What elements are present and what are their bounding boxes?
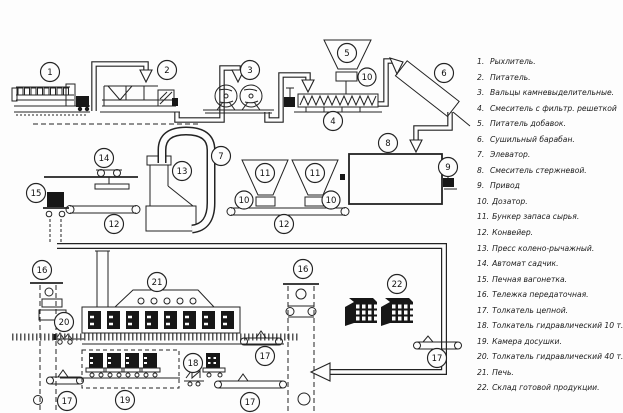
svg-text:21: 21 [152,278,163,288]
legend-item: 5.Питатель добавок. [477,116,623,132]
svg-text:3: 3 [247,66,252,76]
legend-item: 1.Рыхлитель. [477,54,623,70]
legend-item: 17.Толкатель цепной. [477,303,623,319]
legend-item: 7.Элеватор. [477,147,623,163]
legend-item: 8.Смеситель стержневой. [477,163,623,179]
legend-item: 12.Конвейер. [477,225,623,241]
legend-item: 10.Дозатор. [477,194,623,210]
machine-15-kiln-car [43,192,69,243]
svg-text:8: 8 [385,139,390,149]
svg-text:6: 6 [441,69,446,79]
callout-9: 9 [439,158,458,177]
callout-10-top: 10 [358,68,376,86]
callout-15: 15 [27,184,46,203]
svg-text:17: 17 [245,398,256,408]
svg-text:19: 19 [120,396,131,406]
svg-text:9: 9 [445,163,450,173]
flow-arrow-into-mixer [302,80,314,92]
svg-text:16: 16 [37,266,48,276]
legend-item: 18.Толкатель гидравлический 10 т. [477,318,623,334]
callout-8: 8 [379,134,398,153]
callout-4: 4 [324,112,343,131]
svg-text:12: 12 [279,220,290,230]
flow-arrow-into-rod-mixer [410,140,422,152]
legend-item: 13.Пресс колено-рычажный. [477,241,623,257]
chain-pusher-17-c [215,374,287,388]
machine-10-doser-left [256,197,275,206]
legend-item: 2.Питатель. [477,70,623,86]
callout-12-right: 12 [275,215,294,234]
callout-16-left: 16 [33,261,52,280]
warehouse-22-brick-stacks [345,298,413,326]
legend-item: 15.Печная вагонетка. [477,272,623,288]
machine-14-setting-machine [44,170,138,190]
callout-17-d: 17 [428,349,447,368]
process-flow-diagram: 1 2 3 4 5 10 6 7 8 9 13 11 11 10 10 12 1… [0,0,623,413]
transfer-cart-track-right [283,284,319,413]
svg-text:12: 12 [109,220,120,230]
chain-pusher-17-b [241,331,283,345]
callout-1: 1 [41,63,60,82]
callout-21: 21 [148,273,167,292]
callout-5: 5 [338,44,357,63]
callout-22: 22 [388,275,407,294]
svg-text:17: 17 [62,397,73,407]
legend-item: 19.Камера досушки. [477,334,623,350]
legend-item: 4.Смеситель с фильтр. решеткой [477,101,623,117]
legend: 1.Рыхлитель. 2.Питатель. 3.Вальцы камнев… [477,54,623,396]
callout-11-right: 11 [306,164,325,183]
legend-item: 22.Склад готовой продукции. [477,380,623,396]
legend-item: 3.Вальцы камневыделительные. [477,85,623,101]
svg-text:4: 4 [330,117,335,127]
pipe-1-to-2 [94,64,152,111]
svg-text:11: 11 [260,169,271,179]
svg-text:10: 10 [239,196,250,206]
callout-7: 7 [212,147,231,166]
legend-item: 11.Бункер запаса сырья. [477,209,623,225]
callout-12-left: 12 [105,215,124,234]
svg-text:11: 11 [310,169,321,179]
machine-8-rod-mixer [340,154,442,204]
machine-2-feeder [100,86,180,112]
svg-text:13: 13 [177,167,188,177]
callout-14: 14 [95,149,114,168]
callout-17-a: 17 [58,392,77,411]
pipe-6-to-8 [410,112,450,152]
svg-text:5: 5 [344,49,349,59]
flow-arrow-into-drum [390,58,403,74]
svg-text:16: 16 [298,265,309,275]
callout-3: 3 [241,61,260,80]
svg-text:20: 20 [59,318,70,328]
legend-item: 6.Сушильный барабан. [477,132,623,148]
callout-18: 18 [184,354,203,373]
machine-21-kiln [12,251,298,344]
machine-10-doser-right [305,197,324,206]
svg-text:10: 10 [326,196,337,206]
drying-chamber-19 [60,350,180,388]
legend-item: 21.Печь. [477,365,623,381]
legend-item: 20.Толкатель гидравлический 40 т. [477,349,623,365]
svg-text:14: 14 [99,154,110,164]
legend-item: 14.Автомат садчик. [477,256,623,272]
legend-item: 9.Привод [477,178,623,194]
pipe-2-to-3 [177,68,244,120]
callout-17-c: 17 [241,393,260,412]
svg-text:15: 15 [31,189,42,199]
legend-item: 16.Тележка передаточная. [477,287,623,303]
machine-1-ripper [12,84,90,115]
callout-2: 2 [158,61,177,80]
svg-text:22: 22 [392,280,403,290]
flow-arrow-into-feeder [140,70,152,82]
callout-20: 20 [55,313,74,332]
svg-text:7: 7 [218,152,223,162]
callout-10-left: 10 [235,191,253,209]
callout-19: 19 [116,391,135,410]
chain-pusher-17-d [414,336,462,349]
machine-10-doser-top [336,72,357,94]
machine-6-drying-drum [395,61,470,126]
svg-text:10: 10 [362,73,373,83]
callout-16-right: 16 [294,260,313,279]
callout-11-left: 11 [256,164,275,183]
svg-text:18: 18 [188,359,199,369]
machine-12-conveyor-left [66,206,140,214]
machine-4-filter-mixer [284,88,382,112]
svg-text:2: 2 [164,66,169,76]
svg-text:17: 17 [432,354,443,364]
callout-17-b: 17 [256,347,275,366]
svg-text:17: 17 [260,352,271,362]
pipe-4-to-6 [378,58,403,104]
svg-text:1: 1 [47,68,52,78]
callout-13: 13 [173,162,192,181]
machine-3-stone-rollers [203,85,274,113]
chain-pusher-17-a [47,370,84,384]
callout-6: 6 [435,64,454,83]
callout-10-right: 10 [322,191,340,209]
